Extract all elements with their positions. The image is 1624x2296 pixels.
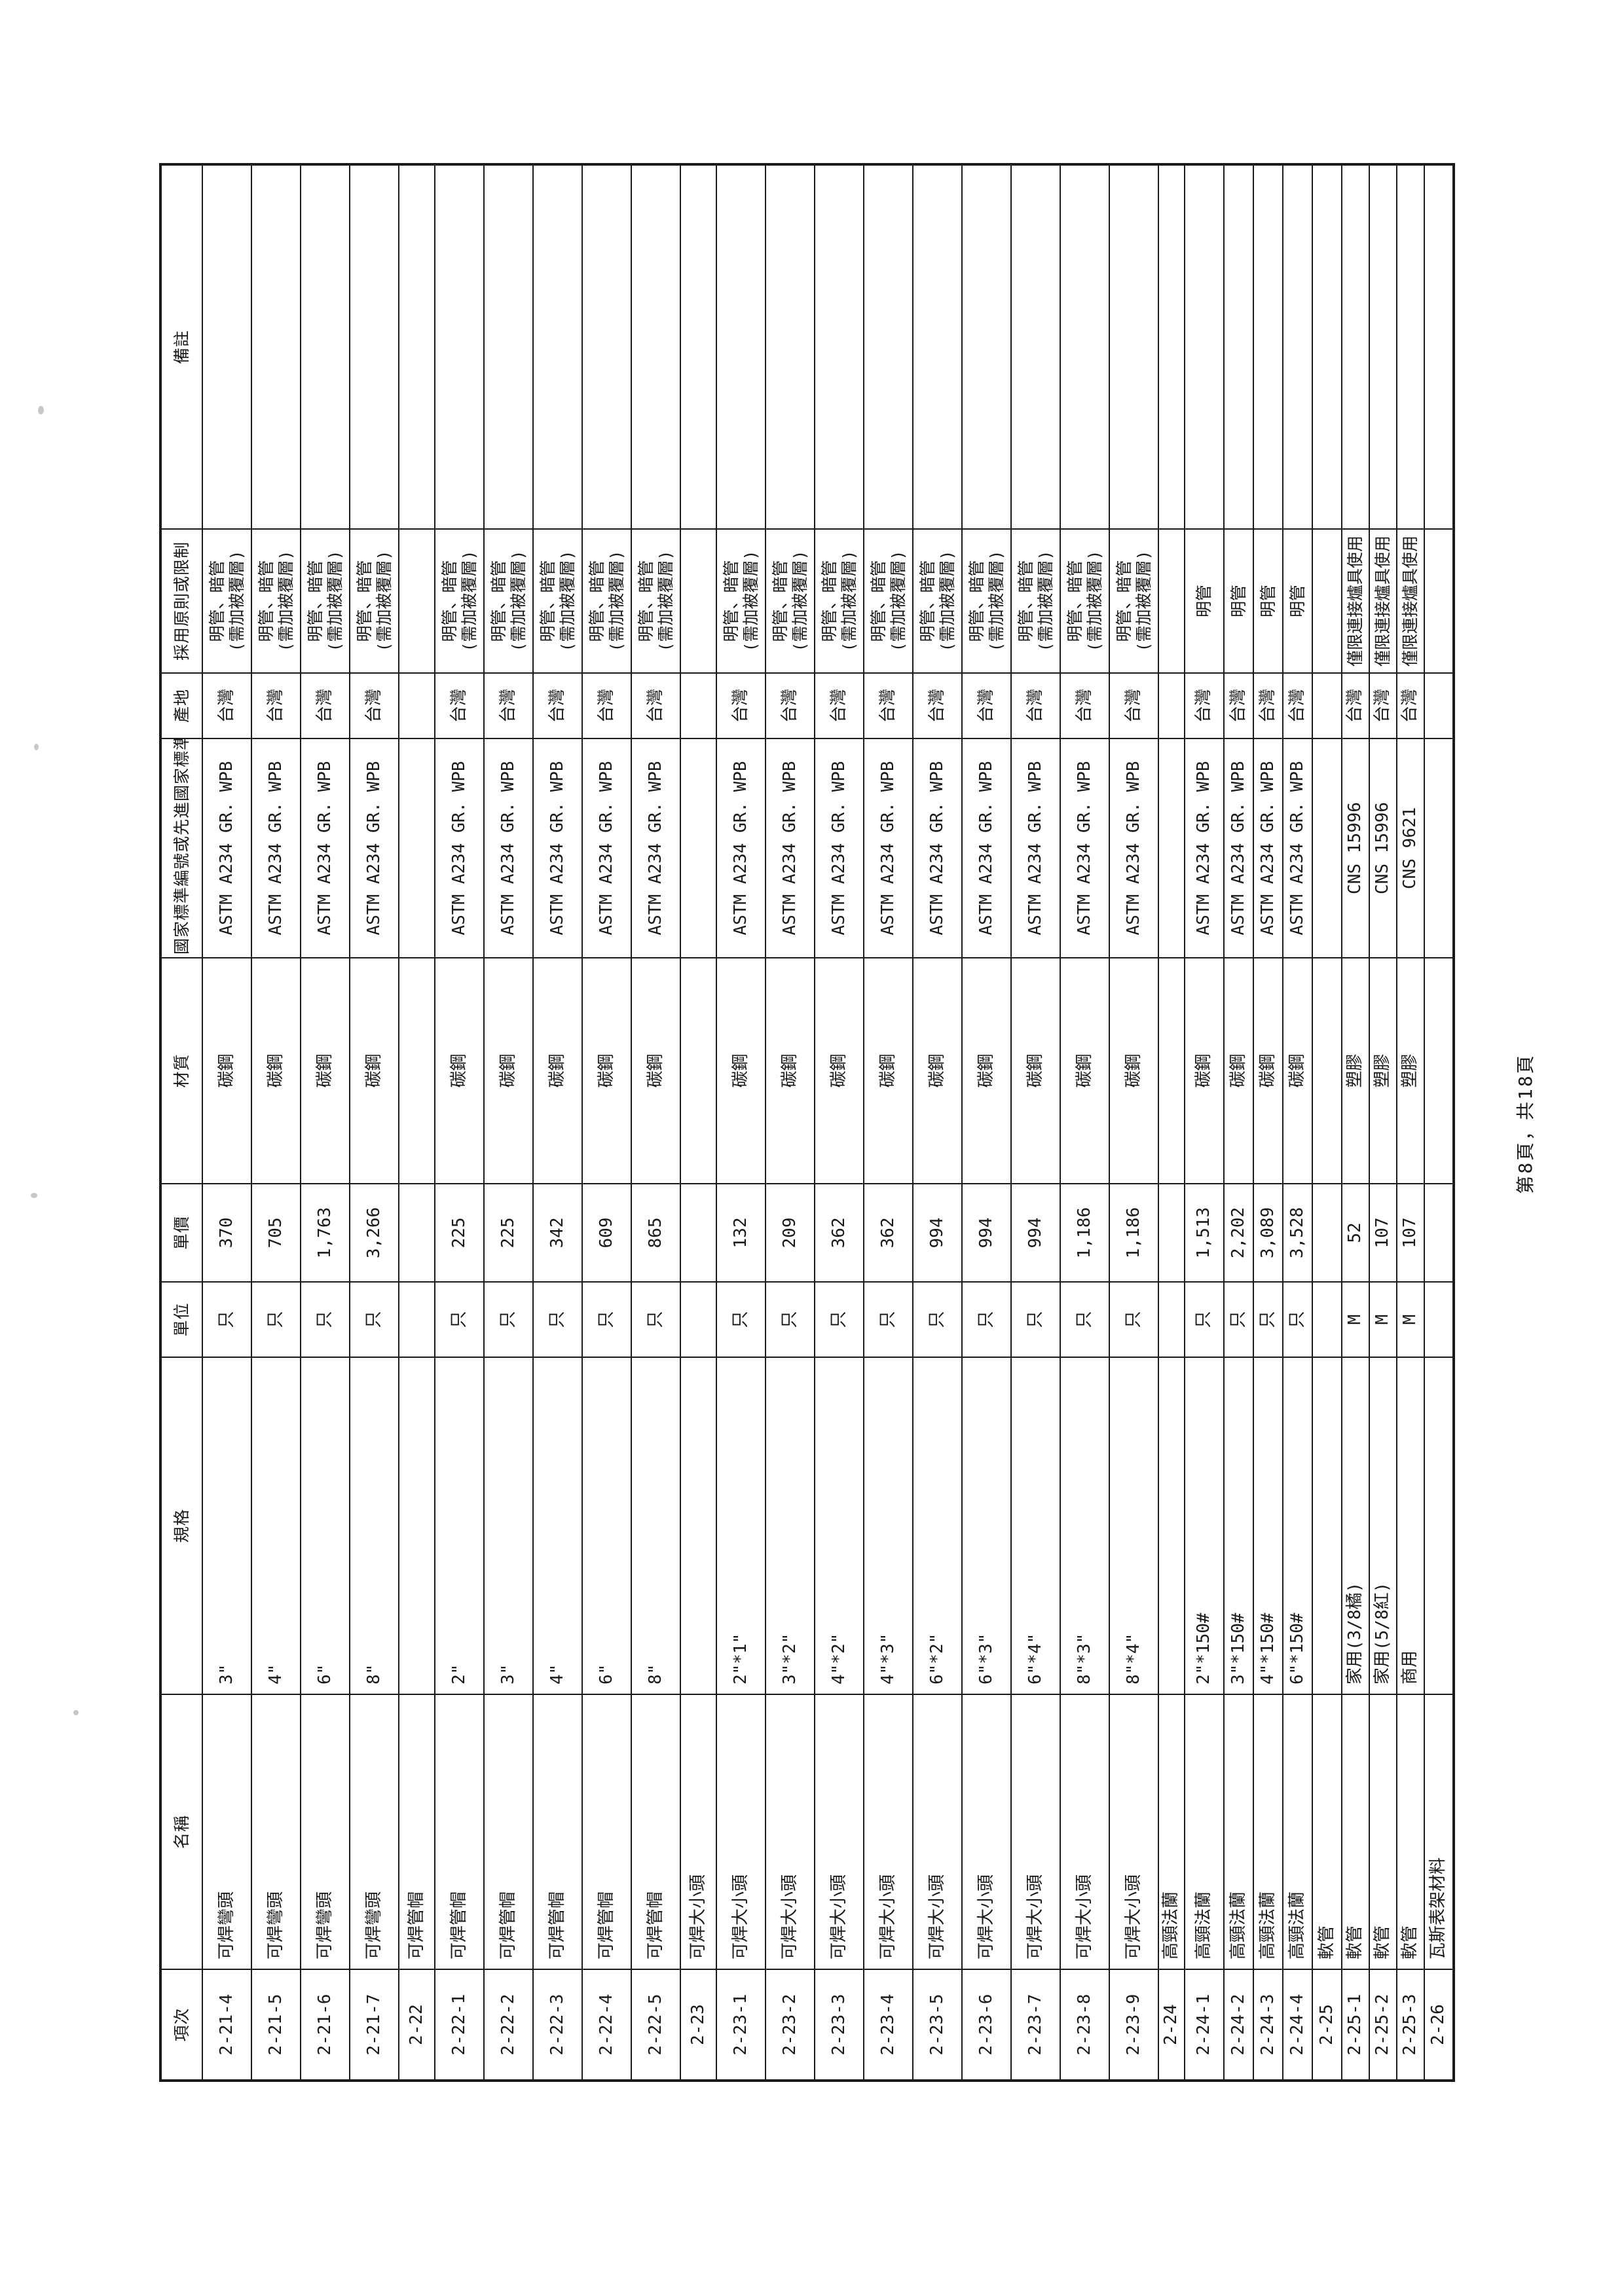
cell-origin: 台灣 [1185, 673, 1224, 738]
cell-usage-rule [1424, 529, 1454, 673]
cell-unit: M [1369, 1282, 1397, 1357]
cell-remark [399, 164, 435, 529]
cell-item-no: 2-23-2 [766, 1969, 815, 2081]
cell-standard: ASTM A234 GR. WPB [1253, 738, 1283, 958]
cell-standard: ASTM A234 GR. WPB [582, 738, 631, 958]
cell-spec: 4" [251, 1357, 301, 1694]
cell-origin: 台灣 [913, 673, 962, 738]
cell-material: 碳鋼 [1185, 958, 1224, 1184]
usage-rule-line: 明管、暗管 [306, 532, 325, 670]
cell-material: 碳鋼 [1253, 958, 1283, 1184]
cell-standard [1424, 738, 1454, 958]
cell-usage-rule: 明管、暗管(需加被覆層) [766, 529, 815, 673]
cell-spec [680, 1357, 716, 1694]
cell-usage-rule [680, 529, 716, 673]
cell-standard: ASTM A234 GR. WPB [1185, 738, 1224, 958]
cell-item-no: 2-23-9 [1109, 1969, 1158, 2081]
cell-name: 可焊彎頭 [251, 1694, 301, 1969]
cell-unit-price: 1,513 [1185, 1184, 1224, 1282]
cell-material: 碳鋼 [1011, 958, 1060, 1184]
cell-standard [399, 738, 435, 958]
usage-rule-line: (需加被覆層) [375, 532, 394, 670]
usage-rule-line: 明管、暗管 [489, 532, 509, 670]
usage-rule-line: 明管、暗管 [1115, 532, 1134, 670]
table-row: 2-25-3軟管商用M107塑膠CNS 9621台灣僅限連接爐具使用 [1397, 164, 1424, 2081]
cell-remark [582, 164, 631, 529]
cell-origin: 台灣 [1342, 673, 1369, 738]
cell-material [1424, 958, 1454, 1184]
cell-remark [815, 164, 864, 529]
cell-usage-rule: 明管、暗管(需加被覆層) [533, 529, 582, 673]
cell-spec [1312, 1357, 1342, 1694]
cell-usage-rule: 明管、暗管(需加被覆層) [582, 529, 631, 673]
cell-standard: CNS 15996 [1342, 738, 1369, 958]
scan-speck [38, 406, 44, 414]
cell-origin [399, 673, 435, 738]
usage-rule-line: (需加被覆層) [1134, 532, 1154, 670]
cell-usage-rule [1312, 529, 1342, 673]
cell-spec: 6" [582, 1357, 631, 1694]
column-header-6: 國家標準編號或先進國家標準 [160, 738, 202, 958]
usage-rule-line: 明管 [1288, 532, 1308, 670]
scan-speck [73, 1710, 79, 1715]
cell-unit: 只 [864, 1282, 913, 1357]
cell-remark [1158, 164, 1185, 529]
cell-unit-price: 132 [716, 1184, 766, 1282]
cell-unit: 只 [1253, 1282, 1283, 1357]
usage-rule-line: 明管、暗管 [1065, 532, 1085, 670]
usage-rule-line: (需加被覆層) [656, 532, 676, 670]
cell-spec: 家用(5/8紅) [1369, 1357, 1397, 1694]
cell-origin: 台灣 [716, 673, 766, 738]
cell-spec: 3"*150# [1224, 1357, 1253, 1694]
cell-unit: 只 [1185, 1282, 1224, 1357]
cell-spec: 6"*3" [962, 1357, 1011, 1694]
usage-rule-line: (需加被覆層) [741, 532, 761, 670]
table-row: 2-24-2高頸法蘭3"*150#只2,202碳鋼ASTM A234 GR. W… [1224, 164, 1253, 2081]
cell-item-no: 2-22-2 [484, 1969, 533, 2081]
cell-origin: 台灣 [251, 673, 301, 738]
cell-origin: 台灣 [435, 673, 484, 738]
usage-rule-line: 明管、暗管 [355, 532, 375, 670]
scan-speck [31, 1193, 37, 1198]
usage-rule-line: 明管、暗管 [257, 532, 276, 670]
cell-unit-price: 609 [582, 1184, 631, 1282]
cell-item-no: 2-22-5 [631, 1969, 680, 2081]
cell-name: 高頸法蘭 [1224, 1694, 1253, 1969]
cell-material: 碳鋼 [766, 958, 815, 1184]
cell-item-no: 2-24-3 [1253, 1969, 1283, 2081]
cell-remark [1397, 164, 1424, 529]
section-row: 2-22可焊管帽 [399, 164, 435, 2081]
cell-standard: ASTM A234 GR. WPB [1060, 738, 1109, 958]
cell-remark [1283, 164, 1312, 529]
cell-origin [1312, 673, 1342, 738]
cell-remark [766, 164, 815, 529]
cell-name: 可焊管帽 [533, 1694, 582, 1969]
cell-name: 可焊大小頭 [815, 1694, 864, 1969]
cell-item-no: 2-24-2 [1224, 1969, 1253, 2081]
cell-usage-rule: 僅限連接爐具使用 [1369, 529, 1397, 673]
usage-rule-line: 明管、暗管 [967, 532, 987, 670]
column-header-1: 名稱 [160, 1694, 202, 1969]
cell-name: 可焊彎頭 [350, 1694, 399, 1969]
table-row: 2-23-3可焊大小頭4"*2"只362碳鋼ASTM A234 GR. WPB台… [815, 164, 864, 2081]
cell-usage-rule: 明管 [1253, 529, 1283, 673]
cell-item-no: 2-21-6 [301, 1969, 350, 2081]
cell-unit: 只 [350, 1282, 399, 1357]
cell-material: 碳鋼 [1109, 958, 1158, 1184]
cell-usage-rule [1158, 529, 1185, 673]
cell-unit-price: 225 [484, 1184, 533, 1282]
cell-unit [1424, 1282, 1454, 1357]
cell-name: 可焊大小頭 [1060, 1694, 1109, 1969]
cell-unit: 只 [202, 1282, 251, 1357]
cell-spec: 3" [202, 1357, 251, 1694]
cell-spec: 4"*2" [815, 1357, 864, 1694]
table-row: 2-21-7可焊彎頭8"只3,266碳鋼ASTM A234 GR. WPB台灣明… [350, 164, 399, 2081]
cell-standard: ASTM A234 GR. WPB [913, 738, 962, 958]
cell-name: 高頸法蘭 [1283, 1694, 1312, 1969]
table-row: 2-22-2可焊管帽3"只225碳鋼ASTM A234 GR. WPB台灣明管、… [484, 164, 533, 2081]
cell-item-no: 2-23 [680, 1969, 716, 2081]
cell-item-no: 2-22-3 [533, 1969, 582, 2081]
cell-item-no: 2-22 [399, 1969, 435, 2081]
usage-rule-line: 明管、暗管 [869, 532, 889, 670]
cell-usage-rule: 明管 [1224, 529, 1253, 673]
table-row: 2-21-6可焊彎頭6"只1,763碳鋼ASTM A234 GR. WPB台灣明… [301, 164, 350, 2081]
usage-rule-line: 明管、暗管 [1016, 532, 1036, 670]
cell-unit: 只 [533, 1282, 582, 1357]
cell-item-no: 2-23-5 [913, 1969, 962, 2081]
cell-standard: CNS 9621 [1397, 738, 1424, 958]
cell-origin: 台灣 [1369, 673, 1397, 738]
cell-spec [1158, 1357, 1185, 1694]
cell-remark [301, 164, 350, 529]
table-row: 2-23-9可焊大小頭8"*4"只1,186碳鋼ASTM A234 GR. WP… [1109, 164, 1158, 2081]
cell-material: 碳鋼 [350, 958, 399, 1184]
cell-remark [1369, 164, 1397, 529]
usage-rule-line: (需加被覆層) [325, 532, 345, 670]
cell-unit-price [1312, 1184, 1342, 1282]
cell-item-no: 2-23-6 [962, 1969, 1011, 2081]
cell-unit-price: 994 [1011, 1184, 1060, 1282]
cell-material: 塑膠 [1342, 958, 1369, 1184]
cell-usage-rule [399, 529, 435, 673]
cell-unit: 只 [631, 1282, 680, 1357]
cell-name: 可焊管帽 [631, 1694, 680, 1969]
cell-unit-price: 994 [913, 1184, 962, 1282]
cell-material: 碳鋼 [251, 958, 301, 1184]
cell-name: 可焊管帽 [582, 1694, 631, 1969]
usage-rule-line: (需加被覆層) [1036, 532, 1056, 670]
cell-name: 可焊大小頭 [1011, 1694, 1060, 1969]
cell-usage-rule: 僅限連接爐具使用 [1342, 529, 1369, 673]
usage-rule-line: (需加被覆層) [509, 532, 528, 670]
cell-unit: 只 [301, 1282, 350, 1357]
column-header-9: 備註 [160, 164, 202, 529]
cell-unit-price: 342 [533, 1184, 582, 1282]
cell-spec [399, 1357, 435, 1694]
usage-rule-line: 明管、暗管 [538, 532, 558, 670]
cell-material: 碳鋼 [301, 958, 350, 1184]
cell-item-no: 2-26 [1424, 1969, 1454, 2081]
table-row: 2-23-5可焊大小頭6"*2"只994碳鋼ASTM A234 GR. WPB台… [913, 164, 962, 2081]
cell-remark [1011, 164, 1060, 529]
usage-rule-line: (需加被覆層) [987, 532, 1006, 670]
cell-standard: ASTM A234 GR. WPB [251, 738, 301, 958]
cell-unit-price: 107 [1397, 1184, 1424, 1282]
cell-usage-rule: 明管、暗管(需加被覆層) [251, 529, 301, 673]
column-header-8: 採用原則或限制 [160, 529, 202, 673]
cell-unit: 只 [582, 1282, 631, 1357]
cell-item-no: 2-22-1 [435, 1969, 484, 2081]
cell-item-no: 2-21-5 [251, 1969, 301, 2081]
cell-usage-rule: 明管、暗管(需加被覆層) [631, 529, 680, 673]
usage-rule-line: 僅限連接爐具使用 [1401, 532, 1420, 670]
table-row: 2-23-1可焊大小頭2"*1"只132碳鋼ASTM A234 GR. WPB台… [716, 164, 766, 2081]
cell-unit-price: 1,186 [1109, 1184, 1158, 1282]
cell-spec: 6"*4" [1011, 1357, 1060, 1694]
cell-unit: 只 [1011, 1282, 1060, 1357]
section-row: 2-26瓦斯表架材料 [1424, 164, 1454, 2081]
cell-usage-rule: 明管、暗管(需加被覆層) [1011, 529, 1060, 673]
cell-unit-price: 3,089 [1253, 1184, 1283, 1282]
cell-unit-price: 209 [766, 1184, 815, 1282]
usage-rule-line: (需加被覆層) [889, 532, 908, 670]
usage-rule-line: (需加被覆層) [460, 532, 479, 670]
usage-rule-line: 明管、暗管 [820, 532, 840, 670]
cell-remark [435, 164, 484, 529]
cell-remark [913, 164, 962, 529]
cell-name: 可焊管帽 [399, 1694, 435, 1969]
cell-standard: ASTM A234 GR. WPB [350, 738, 399, 958]
scanned-document-page: 項次名稱規格單位單價材質國家標準編號或先進國家標準產地採用原則或限制備註 2-2… [0, 0, 1624, 2296]
cell-name: 可焊大小頭 [1109, 1694, 1158, 1969]
cell-remark [631, 164, 680, 529]
cell-unit-price: 3,266 [350, 1184, 399, 1282]
cell-remark [484, 164, 533, 529]
cell-origin: 台灣 [766, 673, 815, 738]
cell-unit: 只 [766, 1282, 815, 1357]
cell-origin: 台灣 [864, 673, 913, 738]
usage-rule-line: (需加被覆層) [1085, 532, 1105, 670]
usage-rule-line: 明管、暗管 [637, 532, 656, 670]
usage-rule-line: (需加被覆層) [840, 532, 859, 670]
cell-unit: 只 [1283, 1282, 1312, 1357]
cell-usage-rule: 明管、暗管(需加被覆層) [864, 529, 913, 673]
cell-name: 瓦斯表架材料 [1424, 1694, 1454, 1969]
cell-remark [1185, 164, 1224, 529]
cell-unit-price: 2,202 [1224, 1184, 1253, 1282]
usage-rule-line: (需加被覆層) [558, 532, 578, 670]
cell-usage-rule: 明管 [1283, 529, 1312, 673]
cell-origin: 台灣 [1060, 673, 1109, 738]
usage-rule-line: (需加被覆層) [790, 532, 810, 670]
cell-usage-rule: 明管、暗管(需加被覆層) [815, 529, 864, 673]
cell-name: 可焊大小頭 [766, 1694, 815, 1969]
cell-standard: ASTM A234 GR. WPB [815, 738, 864, 958]
cell-unit: 只 [913, 1282, 962, 1357]
cell-unit-price [680, 1184, 716, 1282]
cell-origin: 台灣 [1283, 673, 1312, 738]
cell-item-no: 2-24 [1158, 1969, 1185, 2081]
cell-name: 可焊大小頭 [680, 1694, 716, 1969]
cell-material: 碳鋼 [533, 958, 582, 1184]
cell-unit: M [1397, 1282, 1424, 1357]
table-row: 2-22-4可焊管帽6"只609碳鋼ASTM A234 GR. WPB台灣明管、… [582, 164, 631, 2081]
cell-item-no: 2-23-7 [1011, 1969, 1060, 2081]
cell-standard: ASTM A234 GR. WPB [533, 738, 582, 958]
section-row: 2-24高頸法蘭 [1158, 164, 1185, 2081]
cell-unit-price: 52 [1342, 1184, 1369, 1282]
cell-spec: 8" [350, 1357, 399, 1694]
cell-origin: 台灣 [815, 673, 864, 738]
cell-remark [1424, 164, 1454, 529]
column-header-0: 項次 [160, 1969, 202, 2081]
usage-rule-line: (需加被覆層) [607, 532, 627, 670]
cell-unit-price: 370 [202, 1184, 251, 1282]
cell-spec: 8"*4" [1109, 1357, 1158, 1694]
table-row: 2-21-5可焊彎頭4"只705碳鋼ASTM A234 GR. WPB台灣明管、… [251, 164, 301, 2081]
cell-material: 碳鋼 [1283, 958, 1312, 1184]
cell-origin: 台灣 [533, 673, 582, 738]
table-row: 2-23-7可焊大小頭6"*4"只994碳鋼ASTM A234 GR. WPB台… [1011, 164, 1060, 2081]
cell-material: 碳鋼 [435, 958, 484, 1184]
cell-unit [1312, 1282, 1342, 1357]
section-row: 2-25軟管 [1312, 164, 1342, 2081]
cell-unit: 只 [815, 1282, 864, 1357]
cell-unit: 只 [1109, 1282, 1158, 1357]
cell-spec: 6"*2" [913, 1357, 962, 1694]
cell-item-no: 2-23-1 [716, 1969, 766, 2081]
cell-origin: 台灣 [1011, 673, 1060, 738]
cell-item-no: 2-24-4 [1283, 1969, 1312, 2081]
cell-material [399, 958, 435, 1184]
cell-material: 碳鋼 [716, 958, 766, 1184]
cell-standard: ASTM A234 GR. WPB [1011, 738, 1060, 958]
cell-origin [1158, 673, 1185, 738]
cell-name: 可焊管帽 [435, 1694, 484, 1969]
cell-name: 軟管 [1312, 1694, 1342, 1969]
page-footer: 第8頁，共18頁 [1511, 166, 1538, 2082]
cell-standard [1312, 738, 1342, 958]
usage-rule-line: 僅限連接爐具使用 [1346, 532, 1365, 670]
cell-remark [680, 164, 716, 529]
usage-rule-line: 明管、暗管 [771, 532, 790, 670]
table-row: 2-23-8可焊大小頭8"*3"只1,186碳鋼ASTM A234 GR. WP… [1060, 164, 1109, 2081]
cell-item-no: 2-25-2 [1369, 1969, 1397, 2081]
cell-standard: ASTM A234 GR. WPB [435, 738, 484, 958]
cell-usage-rule: 明管、暗管(需加被覆層) [350, 529, 399, 673]
cell-unit [1158, 1282, 1185, 1357]
cell-unit [399, 1282, 435, 1357]
cell-origin: 台灣 [962, 673, 1011, 738]
cell-usage-rule: 明管、暗管(需加被覆層) [1109, 529, 1158, 673]
usage-rule-line: 明管 [1194, 532, 1214, 670]
cell-name: 可焊彎頭 [202, 1694, 251, 1969]
cell-spec: 3" [484, 1357, 533, 1694]
usage-rule-line: 明管、暗管 [208, 532, 227, 670]
cell-material [1158, 958, 1185, 1184]
cell-material: 碳鋼 [962, 958, 1011, 1184]
cell-spec: 4" [533, 1357, 582, 1694]
cell-material: 碳鋼 [815, 958, 864, 1184]
cell-name: 可焊管帽 [484, 1694, 533, 1969]
table-row: 2-25-2軟管家用(5/8紅)M107塑膠CNS 15996台灣僅限連接爐具使… [1369, 164, 1397, 2081]
cell-material [1312, 958, 1342, 1184]
cell-unit-price: 225 [435, 1184, 484, 1282]
usage-rule-line: (需加被覆層) [938, 532, 957, 670]
cell-origin: 台灣 [301, 673, 350, 738]
cell-standard [1158, 738, 1185, 958]
cell-origin: 台灣 [1109, 673, 1158, 738]
cell-unit [680, 1282, 716, 1357]
cell-name: 軟管 [1397, 1694, 1424, 1969]
cell-standard: ASTM A234 GR. WPB [864, 738, 913, 958]
cell-origin [1424, 673, 1454, 738]
usage-rule-line: 明管、暗管 [918, 532, 938, 670]
usage-rule-line: (需加被覆層) [227, 532, 247, 670]
cell-unit: 只 [435, 1282, 484, 1357]
cell-item-no: 2-21-7 [350, 1969, 399, 2081]
cell-usage-rule: 僅限連接爐具使用 [1397, 529, 1424, 673]
cell-material: 塑膠 [1369, 958, 1397, 1184]
cell-name: 可焊大小頭 [864, 1694, 913, 1969]
usage-rule-line: (需加被覆層) [276, 532, 296, 670]
cell-standard: ASTM A234 GR. WPB [301, 738, 350, 958]
cell-material: 碳鋼 [1060, 958, 1109, 1184]
cell-remark [1312, 164, 1342, 529]
cell-name: 軟管 [1342, 1694, 1369, 1969]
table-header-row: 項次名稱規格單位單價材質國家標準編號或先進國家標準產地採用原則或限制備註 [160, 164, 202, 2081]
cell-standard: ASTM A234 GR. WPB [631, 738, 680, 958]
price-table: 項次名稱規格單位單價材質國家標準編號或先進國家標準產地採用原則或限制備註 2-2… [159, 163, 1455, 2082]
table-row: 2-22-1可焊管帽2"只225碳鋼ASTM A234 GR. WPB台灣明管、… [435, 164, 484, 2081]
cell-item-no: 2-25 [1312, 1969, 1342, 2081]
section-row: 2-23可焊大小頭 [680, 164, 716, 2081]
cell-unit: M [1342, 1282, 1369, 1357]
cell-unit-price [1424, 1184, 1454, 1282]
cell-spec: 4"*3" [864, 1357, 913, 1694]
table-row: 2-22-3可焊管帽4"只342碳鋼ASTM A234 GR. WPB台灣明管、… [533, 164, 582, 2081]
cell-spec: 6"*150# [1283, 1357, 1312, 1694]
cell-unit-price: 362 [864, 1184, 913, 1282]
usage-rule-line: 僅限連接爐具使用 [1373, 532, 1393, 670]
cell-remark [533, 164, 582, 529]
table-row: 2-23-4可焊大小頭4"*3"只362碳鋼ASTM A234 GR. WPB台… [864, 164, 913, 2081]
cell-origin: 台灣 [1224, 673, 1253, 738]
cell-spec: 8"*3" [1060, 1357, 1109, 1694]
cell-usage-rule: 明管、暗管(需加被覆層) [716, 529, 766, 673]
cell-remark [864, 164, 913, 529]
cell-origin [680, 673, 716, 738]
cell-spec: 2"*150# [1185, 1357, 1224, 1694]
cell-origin: 台灣 [484, 673, 533, 738]
cell-spec [1424, 1357, 1454, 1694]
usage-rule-line: 明管 [1259, 532, 1278, 670]
cell-standard: ASTM A234 GR. WPB [766, 738, 815, 958]
cell-material: 碳鋼 [913, 958, 962, 1184]
cell-unit-price: 865 [631, 1184, 680, 1282]
cell-standard: ASTM A234 GR. WPB [716, 738, 766, 958]
cell-standard: ASTM A234 GR. WPB [1224, 738, 1253, 958]
cell-item-no: 2-22-4 [582, 1969, 631, 2081]
cell-unit-price: 3,528 [1283, 1184, 1312, 1282]
cell-remark [1109, 164, 1158, 529]
cell-remark [251, 164, 301, 529]
cell-standard: ASTM A234 GR. WPB [1109, 738, 1158, 958]
